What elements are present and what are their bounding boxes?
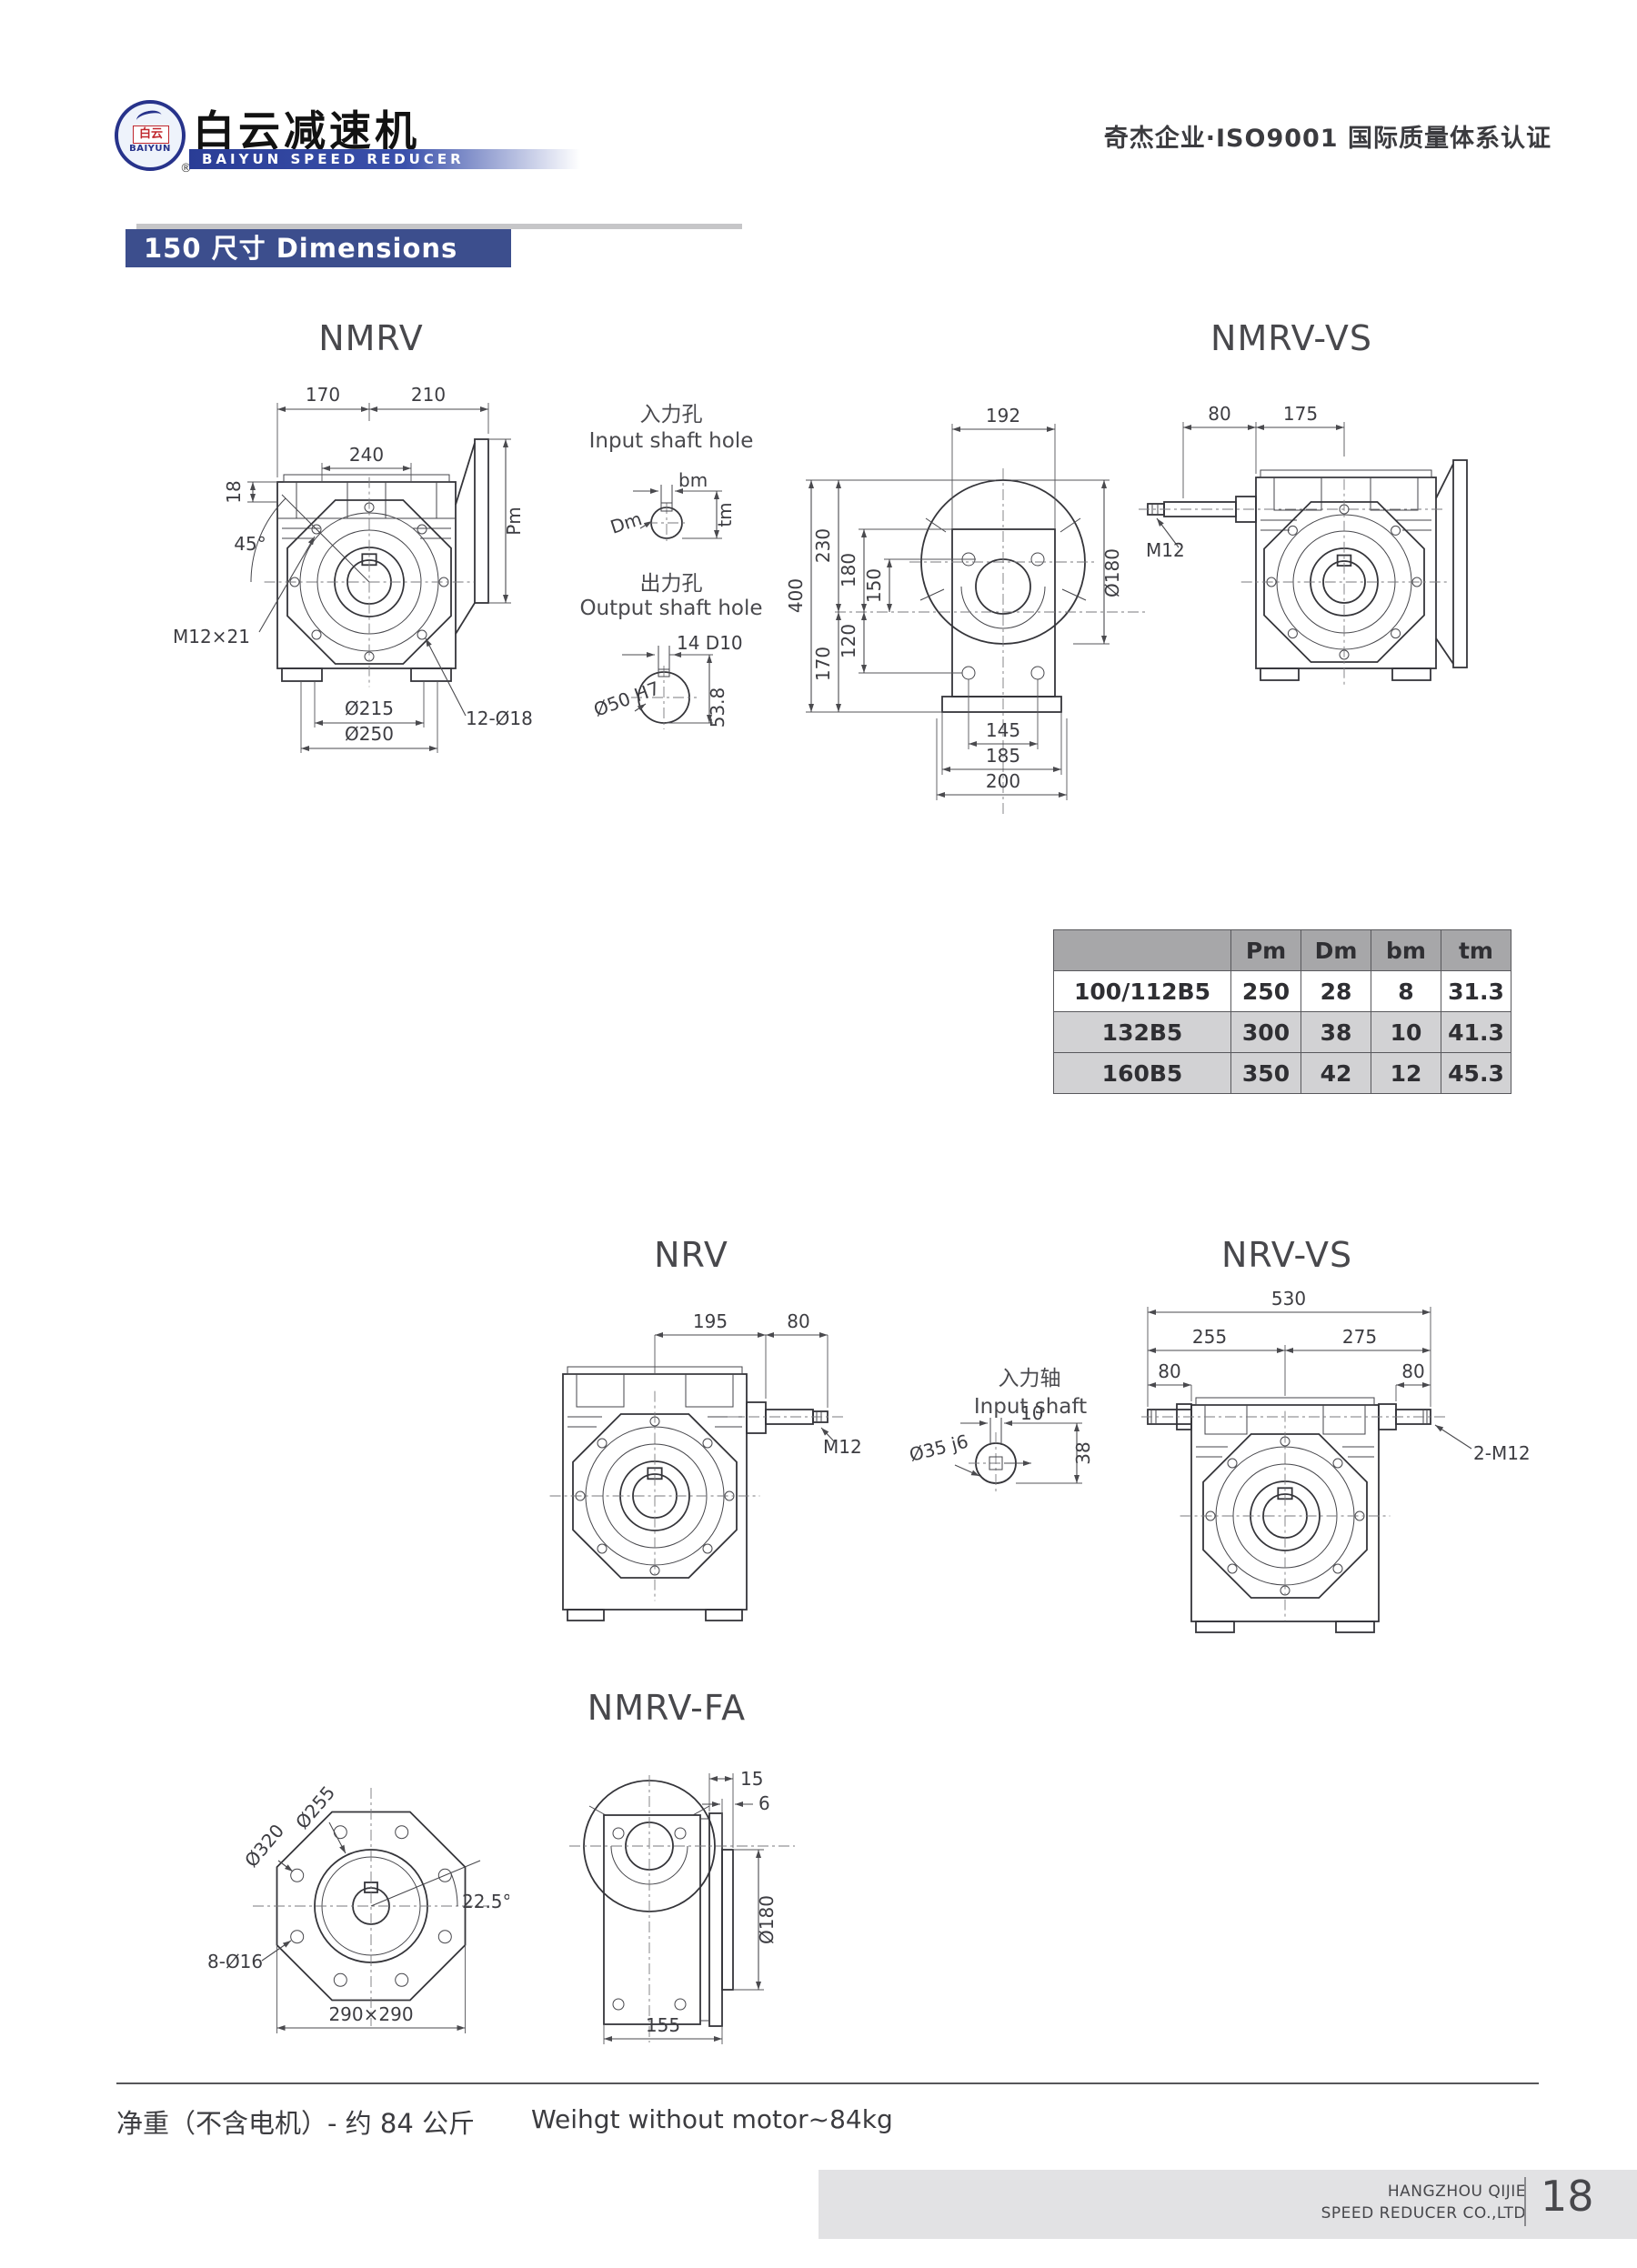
emblem-en-text: BAIYUN (118, 144, 182, 154)
dim-tm: tm (714, 502, 736, 527)
nmrv-drawing: 170 210 240 18 Pm 45° M12×21 Ø215 (146, 368, 564, 778)
header-model (1054, 930, 1231, 971)
nmrv-fa-flange-dimensions: Ø255 Ø320 22.5° 8-Ø16 290×290 (207, 1781, 509, 2033)
dim-192: 192 (986, 405, 1020, 427)
dim-22-5deg: 22.5° (462, 1891, 509, 1912)
cell-dm: 42 (1301, 1053, 1371, 1094)
dim-80: 80 (787, 1310, 809, 1332)
dim-6: 6 (758, 1792, 770, 1814)
drawing-title-nmrv-vs: NMRV-VS (1196, 318, 1387, 358)
cell-tm: 41.3 (1441, 1012, 1511, 1053)
nmrv-fa-side-drawing: 15 6 Ø180 155 (557, 1762, 820, 2053)
header-pm: Pm (1231, 930, 1301, 971)
dim-m12: M12 (823, 1436, 862, 1458)
cell-bm: 10 (1371, 1012, 1441, 1053)
dim-230: 230 (812, 528, 834, 563)
dim-dia180: Ø180 (1101, 548, 1123, 597)
output-hole-diagram: 14 D10 Ø50 H7 53.8 (591, 627, 755, 764)
cell-pm: 350 (1231, 1053, 1301, 1094)
dim-8-dia16: 8-Ø16 (207, 1951, 263, 1972)
nmrv-fa-side-dimensions: 15 6 Ø180 155 (604, 1768, 778, 2044)
brand-name-en: BAIYUN SPEED REDUCER (189, 149, 580, 169)
weight-note-cn: 净重（不含电机）- 约 84 公斤 (116, 2102, 475, 2141)
dim-dia50h7: Ø50 H7 (591, 677, 662, 720)
header-tm: tm (1441, 930, 1511, 971)
table-row: 100/112B5 250 28 8 31.3 (1054, 971, 1511, 1012)
dim-200: 200 (986, 770, 1020, 792)
dim-53-8: 53.8 (707, 687, 728, 728)
dim-dia180: Ø180 (756, 1895, 778, 1944)
drawing-title-nmrv-fa: NMRV-FA (571, 1688, 762, 1728)
cell-bm: 12 (1371, 1053, 1441, 1094)
nmrv-vs-drawing: 80 175 M12 (1128, 400, 1546, 818)
emblem-bird-icon (136, 108, 164, 126)
footer-divider (116, 2082, 1539, 2084)
dim-80-left: 80 (1158, 1360, 1180, 1382)
dim-195: 195 (693, 1310, 728, 1332)
cell-tm: 45.3 (1441, 1053, 1511, 1094)
table-row: 160B5 350 42 12 45.3 (1054, 1053, 1511, 1094)
front-view-drawing: 192 400 230 180 150 120 170 Ø180 (782, 400, 1164, 837)
spec-table: Pm Dm bm tm 100/112B5 250 28 8 31.3 132B… (1053, 929, 1511, 1094)
dim-210: 210 (411, 384, 446, 406)
output-hole-caption-cn: 出力孔 (603, 566, 739, 597)
dim-240: 240 (349, 444, 384, 466)
dim-80-right: 80 (1401, 1360, 1424, 1382)
nrv-drawing: 195 80 M12 (546, 1273, 937, 1637)
cell-pm: 250 (1231, 971, 1301, 1012)
drawing-title-nrv: NRV (600, 1235, 782, 1275)
nrv-vs-drawing: 530 255 275 80 80 2-M12 (1137, 1269, 1564, 1660)
dim-185: 185 (986, 745, 1020, 767)
dim-145: 145 (986, 719, 1020, 741)
table-header-row: Pm Dm bm tm (1054, 930, 1511, 971)
nmrv-vs-dimensions: 80 175 M12 (1146, 403, 1344, 561)
header-bm: bm (1371, 930, 1441, 971)
dim-180: 180 (838, 553, 859, 587)
company-line2: SPEED REDUCER CO.,LTD (1321, 2203, 1526, 2224)
dim-150: 150 (863, 568, 885, 603)
nmrv-housing-outline (277, 439, 488, 681)
dim-255: 255 (1192, 1326, 1227, 1348)
dim-dia250: Ø250 (345, 723, 394, 745)
dim-m12: M12 (1146, 539, 1185, 561)
cell-dm: 38 (1301, 1012, 1371, 1053)
drawing-title-nmrv: NMRV (280, 318, 462, 358)
input-hole-diagram: bm tm Dm (600, 468, 755, 568)
section-title-bar: 150 尺寸 Dimensions (126, 229, 511, 267)
cell-bm: 8 (1371, 971, 1441, 1012)
dim-155: 155 (646, 2014, 680, 2036)
dim-2-m12: 2-M12 (1473, 1442, 1531, 1464)
dim-dia255: Ø255 (291, 1781, 339, 1833)
dim-10: 10 (1020, 1405, 1043, 1424)
spec-table-wrap: Pm Dm bm tm 100/112B5 250 28 8 31.3 132B… (1053, 929, 1511, 1094)
baiyun-logo-emblem: 白云 BAIYUN (115, 100, 186, 171)
dim-12-dia18: 12-Ø18 (466, 707, 533, 729)
certification-text: 奇杰企业·ISO9001 国际质量体系认证 (1104, 118, 1552, 154)
dim-pm: Pm (503, 507, 525, 536)
dim-290x290: 290×290 (328, 2003, 413, 2025)
dim-18: 18 (223, 480, 245, 503)
dim-dia215: Ø215 (345, 697, 394, 719)
nmrv-fa-flange-outline (253, 1788, 489, 2026)
dim-38: 38 (1072, 1441, 1094, 1464)
dim-dia35j6: Ø35 j6 (909, 1430, 970, 1466)
input-hole-caption-cn: 入力孔 (603, 396, 739, 427)
nrv-vs-gear-face (1180, 1411, 1391, 1621)
dim-14d10: 14 D10 (677, 632, 743, 654)
dim-530: 530 (1271, 1288, 1306, 1310)
dim-bm: bm (678, 469, 708, 491)
nrv-outline (563, 1367, 846, 1621)
company-name: HANGZHOU QIJIE SPEED REDUCER CO.,LTD (1321, 2181, 1526, 2224)
cell-dm: 28 (1301, 971, 1371, 1012)
cell-model: 100/112B5 (1054, 971, 1231, 1012)
dim-400: 400 (785, 578, 807, 613)
cell-model: 132B5 (1054, 1012, 1231, 1053)
weight-note-en: Weihgt without motor~84kg (531, 2104, 893, 2134)
cell-pm: 300 (1231, 1012, 1301, 1053)
company-line1: HANGZHOU QIJIE (1321, 2181, 1526, 2203)
brand-band: BAIYUN SPEED REDUCER (189, 149, 580, 169)
dim-120: 120 (838, 624, 859, 658)
datasheet-page: 白云 BAIYUN ® 白云减速机 BAIYUN SPEED REDUCER 奇… (0, 0, 1637, 2268)
dim-15: 15 (740, 1768, 763, 1790)
footer-separator (1524, 2177, 1526, 2226)
dim-80: 80 (1208, 403, 1230, 425)
input-shaft-caption-cn: 入力轴 (952, 1360, 1107, 1391)
cell-tm: 31.3 (1441, 971, 1511, 1012)
dim-175: 175 (1283, 403, 1318, 425)
page-number: 18 (1541, 2172, 1594, 2221)
cell-model: 160B5 (1054, 1053, 1231, 1094)
input-shaft-diagram: 10 38 Ø35 j6 (909, 1405, 1137, 1514)
dim-dm: Dm (608, 507, 645, 538)
nmrv-vs-outline (1139, 460, 1467, 680)
emblem-cn-text: 白云 (133, 125, 169, 144)
table-row: 132B5 300 38 10 41.3 (1054, 1012, 1511, 1053)
header-dm: Dm (1301, 930, 1371, 971)
input-hole-caption-en: Input shaft hole (582, 429, 760, 453)
output-hole-caption-en: Output shaft hole (573, 597, 769, 620)
dim-m12x21: M12×21 (173, 626, 250, 647)
dim-170: 170 (812, 647, 834, 681)
nrv-vs-dimensions: 530 255 275 80 80 2-M12 (1148, 1288, 1531, 1464)
dim-45deg: 45° (234, 533, 266, 555)
dim-275: 275 (1342, 1326, 1377, 1348)
nmrv-fa-flange-drawing: Ø255 Ø320 22.5° 8-Ø16 290×290 (200, 1764, 509, 2064)
front-dimensions: 192 400 230 180 150 120 170 Ø180 (785, 405, 1123, 800)
dim-170: 170 (306, 384, 340, 406)
nrv-gear-face (550, 1391, 760, 1601)
